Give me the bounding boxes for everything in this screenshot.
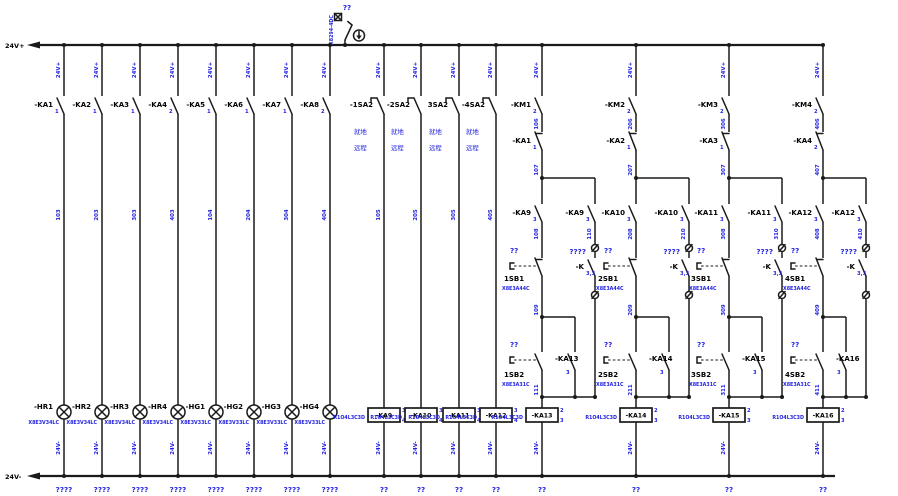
ref-label: X8E3A31C [689,382,717,388]
terminal-label: ???? [56,485,73,494]
pin-label: 2 [814,145,818,151]
wire-number: 24V- [170,441,176,455]
contact-label: -K [576,263,585,271]
contact-label: -KM3 [698,101,718,109]
pin-label: 2 [533,109,537,115]
lamp-label: -HR2 [72,403,91,411]
terminal-label: ?? [380,485,388,494]
pushbutton-3sb2[interactable] [697,354,729,370]
pin-label: 2 [654,408,658,414]
contact-label: -KA4 [793,137,812,145]
terminal-label: ?? [725,485,733,494]
wire-number: 404 [322,209,328,221]
button-label: 2SB1 [598,275,618,283]
question-label: ?? [510,246,518,255]
button-label: 2SB2 [598,371,618,379]
junction-dot [780,395,784,399]
wire-number: 107 [534,164,540,176]
junction-dot [667,395,671,399]
terminal-label: ???? [284,485,301,494]
wire-number: 403 [170,209,176,221]
wire-number: 24V+ [246,62,252,78]
wire-number: 24V- [451,441,457,455]
wire-number: 310 [774,228,780,240]
plug-connector-icon[interactable] [779,292,786,299]
remote-label: 远程 [391,143,404,152]
junction-dot [634,474,638,478]
contact-blade[interactable] [722,258,729,276]
wire-number: 24V+ [208,62,214,78]
contact-label: -KA2 [606,137,625,145]
disconnect-switch[interactable] [335,14,365,42]
pin-label: 1 [245,109,249,115]
junction-dot [176,474,180,478]
lamp-label: -HR4 [148,403,167,411]
ref-label: X8E3V33LC [180,420,211,426]
lamp-hr4[interactable] [171,405,185,419]
contact-label: -KA10 [655,209,679,217]
junction-dot [540,474,544,478]
pin-label: 2 [720,109,724,115]
contact-blade[interactable] [535,354,542,370]
contact-blade[interactable] [629,354,636,370]
left-arrow-icon [27,42,40,49]
wire-number: 410 [858,228,864,240]
wire-number: 204 [246,209,252,221]
pin-label: 3 [660,370,664,376]
wire-number: 307 [721,164,727,176]
junction-dot [290,474,294,478]
button-label: 4SB1 [785,275,805,283]
wire-number: 106 [534,118,540,130]
ref-label: R1O4L3C3D [678,415,710,421]
contact-label: -KA10 [602,209,626,217]
pin-label: 3,3 [680,271,690,277]
wire-number: 24V- [534,441,540,455]
wire-number: 108 [534,228,540,240]
lamp-hr2[interactable] [95,405,109,419]
terminal-label: ?? [819,485,827,494]
wire-number: 24V+ [132,62,138,78]
pushbutton-1sb1[interactable] [510,258,542,276]
wire-number: 103 [56,209,62,221]
pin-label: 3 [837,370,841,376]
pin-label: 1 [533,145,537,151]
plug-connector-icon[interactable] [863,292,870,299]
contact-blade[interactable] [489,98,496,114]
contact-label: -KA3 [699,137,718,145]
pin-label: 2 [321,109,325,115]
wire-number: 24V- [721,441,727,455]
wire-number: 405 [488,209,494,221]
contact-label: -KA2 [72,101,91,109]
pin-label: 2 [560,408,564,414]
contact-blade[interactable] [535,258,542,276]
local-label: 就地 [429,127,442,136]
contact-label: -KA11 [695,209,719,217]
wire-number: 311 [721,384,727,396]
pin-label: 1 [627,145,631,151]
terminal-label: ?? [538,485,546,494]
question-label: ???? [663,247,680,256]
contact-label: -KA1 [34,101,53,109]
wire-number: 411 [815,384,821,396]
contact-label: -KM4 [792,101,812,109]
question-label: ?? [343,3,351,12]
wire-number: 24V+ [376,62,382,78]
wire-number: 110 [587,228,593,240]
terminal-label: ???? [208,485,225,494]
contact-label: -KA4 [148,101,167,109]
pushbutton-2sb1[interactable] [604,258,636,276]
plug-connector-icon[interactable] [592,292,599,299]
wire-number: 24V+ [815,62,821,78]
wire-number: 209 [628,304,634,316]
question-label: ?? [697,246,705,255]
wire-number: 208 [628,228,634,240]
wire-number: 206 [628,118,634,130]
contact-label: -KA6 [224,101,243,109]
question-label: ?? [791,246,799,255]
pin-label: 3 [720,217,724,223]
terminal-label: ?? [455,485,463,494]
contact-label: -KA8 [300,101,319,109]
wire-number: 211 [628,384,634,396]
wire-number: 109 [534,304,540,316]
pin-label: 1 [283,109,287,115]
pin-label: 2 [841,408,845,414]
ref-label: X8E3V34LC [66,420,97,426]
contact-label: -KA11 [748,209,772,217]
pin-label: 2 [169,109,173,115]
pin-label: 3,3 [586,271,596,277]
coil-label: -KA14 [626,413,647,420]
pin-label: 3 [753,370,757,376]
wire-number: 303 [132,209,138,221]
contact-blade[interactable] [629,258,636,276]
selector-label: -4SA2 [462,101,485,109]
question-label: ?? [604,340,612,349]
junction-dot [844,395,848,399]
ref-label: X8E3V33LC [218,420,249,426]
wire-number: 24V+ [534,62,540,78]
junction-dot [494,474,498,478]
contact-label: -KA9 [565,209,584,217]
contact-label: -KM1 [511,101,531,109]
ref-label: X8E3A44C [783,286,811,292]
ref-label: R1O4L3C3D [445,415,477,421]
contact-blade[interactable] [816,258,823,276]
junction-dot [573,395,577,399]
pin-label: 3 [566,370,570,376]
contact-label: -KA1 [512,137,531,145]
wire-number: 104 [208,209,214,221]
ref-label: X8E3A31C [783,382,811,388]
pushbutton-2sb2[interactable] [604,354,636,370]
contact-label: -KA13 [555,355,579,363]
pushbutton-3sb1[interactable] [697,258,729,276]
wire-number: 24V- [628,441,634,455]
lamp-hg2[interactable] [247,405,261,419]
wire-number: 24V- [413,441,419,455]
remote-label: 远程 [354,143,367,152]
lamp-hr1[interactable] [57,405,71,419]
local-label: 就地 [354,127,367,136]
lamp-label: -HR1 [34,403,53,411]
pin-label: 3,3 [773,271,783,277]
rail-label: 24V+ [5,42,25,50]
contact-label: -K [847,263,856,271]
button-label: 3SB1 [691,275,711,283]
contact-label: -KA5 [186,101,205,109]
question-label: ???? [756,247,773,256]
junction-dot [457,474,461,478]
question-label: ?? [604,246,612,255]
junction-dot [100,474,104,478]
pin-label: 3,3 [857,271,867,277]
wire-number: 304 [284,209,290,221]
terminal-label: ?? [492,485,500,494]
pin-label: 3 [680,217,684,223]
contact-label: -KM2 [605,101,625,109]
ref-label: R1O4L3C3D [370,415,402,421]
contact-blade[interactable] [722,354,729,370]
wire-number: 24V- [132,441,138,455]
selector-label: -2SA2 [387,101,410,109]
question-label: ?? [791,340,799,349]
terminal-label: ?? [632,485,640,494]
wire-number: 24V+ [488,62,494,78]
ref-label: X8E3A44C [689,286,717,292]
pin-label: 3 [773,217,777,223]
wire-number: 24V+ [322,62,328,78]
contact-label: -KA3 [110,101,129,109]
selector-label: -1SA2 [350,101,373,109]
pin-label: 2 [627,109,631,115]
terminal-label: ???? [246,485,263,494]
junction-dot [419,474,423,478]
button-label: 3SB2 [691,371,711,379]
junction-dot [593,395,597,399]
pin-label: 3 [514,408,518,414]
local-label: 就地 [466,127,479,136]
wire-number: 24V+ [94,62,100,78]
contact-label: -K [670,263,679,271]
ref-label: X8E3V33LC [256,420,287,426]
contact-blade[interactable] [414,98,421,114]
ref-label: X8E3V34LC [104,420,135,426]
ref-label: R1O4L3C3D [585,415,617,421]
lamp-label: -HG2 [224,403,244,411]
wire-number: 24V+ [721,62,727,78]
wire-number: 24V+ [284,62,290,78]
contact-label: -KA14 [649,355,673,363]
plug-connector-icon[interactable] [592,245,599,252]
terminal-label: ???? [94,485,111,494]
pin-label: 1 [93,109,97,115]
junction-dot [821,474,825,478]
wire-number: 24V- [322,441,328,455]
contact-label: -KA16 [836,355,860,363]
ref-label: X8E3A31C [596,382,624,388]
wire-number: 203 [94,209,100,221]
question-label: ???? [840,247,857,256]
pin-label: 3 [560,418,564,424]
wire-number: 305 [451,209,457,221]
wire-number: 207 [628,164,634,176]
button-label: 4SB2 [785,371,805,379]
switch-lever[interactable] [345,25,352,40]
wire-number: 24V+ [56,62,62,78]
contact-label: -K [763,263,772,271]
coil-label: -KA13 [532,413,553,420]
wire-number: 205 [413,209,419,221]
pushbutton-1sb2[interactable] [510,354,542,370]
pin-label: 3 [814,217,818,223]
contact-label: -KA15 [742,355,766,363]
wire-number: 309 [721,304,727,316]
wire-number: 409 [815,304,821,316]
contact-label: -KA12 [832,209,856,217]
wire-number: 24V- [94,441,100,455]
lamp-hg3[interactable] [285,405,299,419]
button-label: 1SB2 [504,371,524,379]
ref-label: X8294-4DC [329,15,335,45]
wire-number: 24V+ [451,62,457,78]
contact-label: -KA7 [262,101,281,109]
ref-label: X8E3V34LC [142,420,173,426]
junction-dot [138,474,142,478]
contact-blade[interactable] [377,98,384,114]
junction-dot [328,474,332,478]
terminal-label: ???? [170,485,187,494]
wire-number: 407 [815,164,821,176]
ref-label: X8E3A31C [502,382,530,388]
pin-label: 2 [814,109,818,115]
plug-connector-icon[interactable] [686,292,693,299]
lamp-label: -HR3 [110,403,129,411]
pin-label: 3 [533,217,537,223]
wire-number: 24V- [488,441,494,455]
terminal-label: ???? [322,485,339,494]
terminal-label: ?? [417,485,425,494]
pin-label: 3 [857,217,861,223]
question-label: ???? [569,247,586,256]
pushbutton-4sb1[interactable] [791,258,823,276]
lamp-label: -HG4 [300,403,320,411]
wire-number: 306 [721,118,727,130]
junction-dot [760,395,764,399]
wire-number: 105 [376,209,382,221]
junction-dot [864,395,868,399]
wire-number: 24V- [376,441,382,455]
rail-label: 24V- [5,473,22,481]
remote-label: 远程 [429,143,442,152]
coil-label: -KA15 [719,413,740,420]
pin-label: 2 [747,408,751,414]
plug-connector-icon[interactable] [686,245,693,252]
pin-label: 1 [720,145,724,151]
wire-number: 308 [721,228,727,240]
pin-label: 1 [55,109,59,115]
wire-number: 24V- [246,441,252,455]
junction-dot [727,474,731,478]
plug-connector-icon[interactable] [863,245,870,252]
pin-label: 1 [207,109,211,115]
junction-dot [252,474,256,478]
junction-dot [214,474,218,478]
wire-number: 24V+ [413,62,419,78]
switch-lever[interactable] [348,22,352,26]
contact-blade[interactable] [452,98,459,114]
selector-label: 3SA2 [428,101,448,109]
pin-label: 1 [131,109,135,115]
question-label: ?? [510,340,518,349]
remote-label: 远程 [466,143,479,152]
junction-dot [62,474,66,478]
wire-number: 24V- [284,441,290,455]
wire-number: 408 [815,228,821,240]
coil-label: -KA16 [813,413,834,420]
plug-connector-icon[interactable] [779,245,786,252]
local-label: 就地 [391,127,404,136]
ref-label: R1O4L3C3D [772,415,804,421]
wire-number: 210 [681,228,687,240]
contact-label: -KA9 [512,209,531,217]
schematic-page: 24V+24V-??X8294-4DC24V+-KA11103-HR1X8E3V… [0,0,898,496]
ref-label: X8E3V34LC [28,420,59,426]
wire-number: 24V- [815,441,821,455]
pin-label: 3 [841,418,845,424]
contact-label: -KA12 [789,209,813,217]
wire-number: 111 [534,384,540,396]
schematic-canvas: 24V+24V-??X8294-4DC24V+-KA11103-HR1X8E3V… [0,0,898,496]
pin-label: 3 [627,217,631,223]
wire-number: 24V- [208,441,214,455]
junction-dot [687,395,691,399]
lamp-label: -HG3 [262,403,282,411]
contact-blade[interactable] [816,354,823,370]
pushbutton-4sb2[interactable] [791,354,823,370]
question-label: ?? [697,340,705,349]
left-arrow-icon [27,473,40,480]
pin-label: 3 [586,217,590,223]
ref-label: R1O4L3C3D [491,415,523,421]
ref-label: X8E3A44C [596,286,624,292]
ref-label: R1O4L3C3D [408,415,440,421]
wire-number: 406 [815,118,821,130]
ref-label: R1O4L3C3D [333,415,365,421]
terminal-label: ???? [132,485,149,494]
lamp-hg1[interactable] [209,405,223,419]
wire-number: 24V+ [628,62,634,78]
wire-number: 24V+ [170,62,176,78]
lamp-hr3[interactable] [133,405,147,419]
pin-label: 3 [654,418,658,424]
junction-dot [382,474,386,478]
button-label: 1SB1 [504,275,524,283]
ref-label: X8E3A44C [502,286,530,292]
pin-label: 3 [747,418,751,424]
ref-label: X8E3V33LC [294,420,325,426]
wire-number: 24V- [56,441,62,455]
lamp-label: -HG1 [186,403,206,411]
